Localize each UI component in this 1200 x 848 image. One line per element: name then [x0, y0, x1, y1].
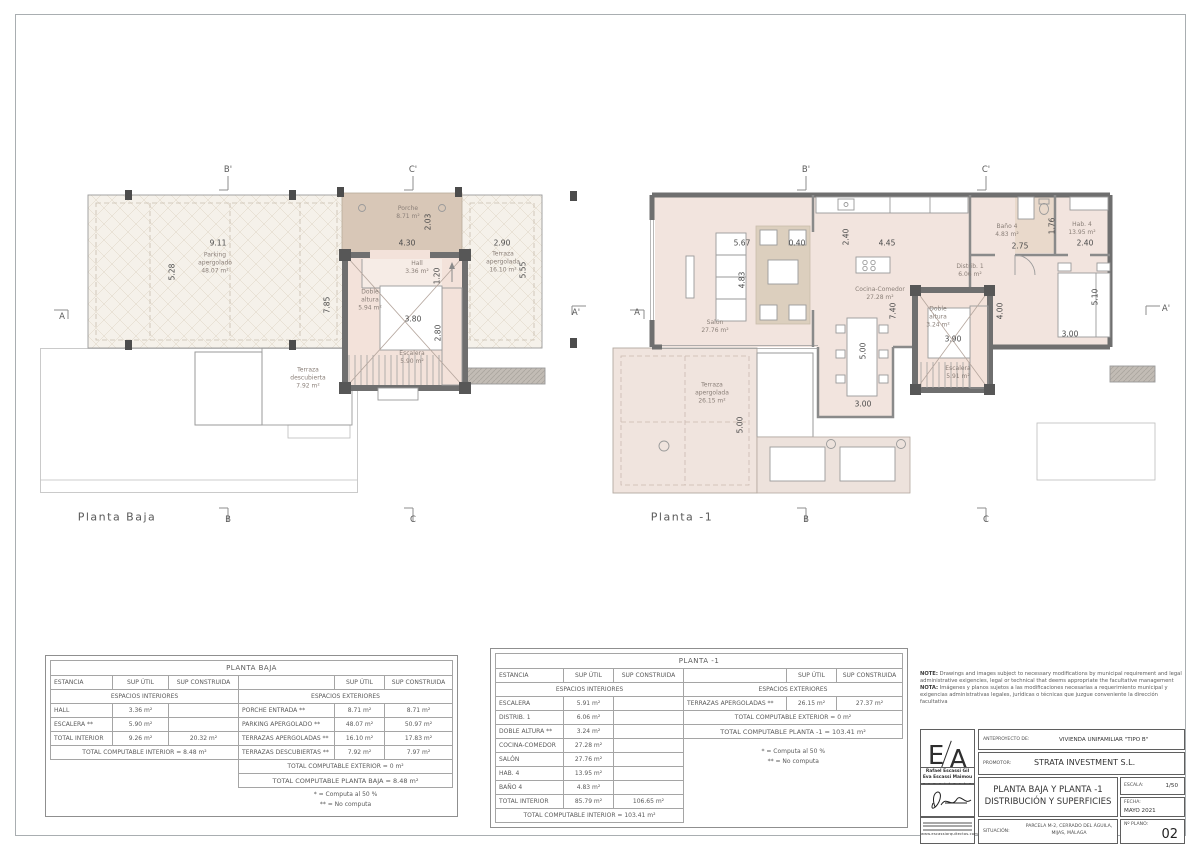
note-spanish: NOTA: Imágenes y planos sujetos a las mo… — [920, 685, 1183, 706]
legal-note: NOTE: Drawings and images subject to nec… — [920, 671, 1183, 706]
exterior-stairs — [195, 352, 262, 425]
surface-table-planta-m1: PLANTA -1 ESTANCIA SUP ÚTIL SUP CONSTRUI… — [490, 648, 908, 828]
dim-label: 7.85 — [323, 297, 332, 314]
dim-label: 2.03 — [424, 214, 433, 231]
section-marker-c-prime: C' — [409, 165, 417, 175]
dim-label: 4.00 — [996, 303, 1005, 320]
contact-line — [923, 829, 972, 831]
dim-label: 5.28 — [168, 264, 177, 281]
dim-label: 3.90 — [945, 335, 962, 344]
section-marker-b-prime-m1: B' — [802, 165, 810, 175]
room-label-escalera-m1: Escalera 5.91 m² — [938, 365, 978, 381]
dim-label: 5.00 — [736, 417, 745, 434]
table-subheader-row: ESPACIOS INTERIORES ESPACIOS EXTERIORES — [496, 683, 903, 697]
section-marker-b-prime: B' — [224, 165, 232, 175]
contact-line — [923, 822, 972, 824]
dim-label: 3.00 — [855, 400, 872, 409]
table-row: ESCALERA ** 5.90 m² PARKING APERGOLADO *… — [51, 718, 453, 732]
plano-number-box: Nº PLANO: 02 — [1120, 819, 1185, 844]
table-row: COCINA-COMEDOR 27.28 m² * = Computa al 5… — [496, 739, 903, 753]
room-label-parking: Parking apergolado 48.07 m² — [192, 251, 238, 274]
table-header-row: ESTANCIA SUP ÚTIL SUP CONSTRUIDA SUP ÚTI… — [496, 669, 903, 683]
architect-names: Rafael Escassi Gil Eva Escassi Maimou a … — [920, 767, 975, 784]
room-label-cocina: Cocina-Comedor 27.28 m² — [845, 286, 915, 302]
table-row: DOBLE ALTURA ** 3.24 m² TOTAL COMPUTABLE… — [496, 725, 903, 739]
fecha-box: FECHA: MAYO 2021 — [1120, 797, 1185, 817]
plan-title-baja: Planta Baja — [78, 511, 157, 524]
dim-label: 3.00 — [1062, 330, 1079, 339]
table-row: TOTAL COMPUTABLE INTERIOR = 8.48 m² TERR… — [51, 746, 453, 760]
surface-table-planta-baja: PLANTA BAJA ESTANCIA SUP ÚTIL SUP CONSTR… — [45, 655, 458, 817]
room-label-terraza-m1: Terraza apergolada 26.15 m² — [689, 381, 735, 404]
dim-label: 2.40 — [1077, 239, 1094, 248]
section-marker-c-prime-m1: C' — [982, 165, 990, 175]
table-subheader-row: ESPACIOS INTERIORES ESPACIOS EXTERIORES — [51, 690, 453, 704]
room-label-doble-altura-m1: Doble altura 3.24 m² — [924, 305, 952, 328]
section-marker-b-m1: B — [803, 515, 809, 525]
table-row: DISTRIB. 1 6.06 m² TOTAL COMPUTABLE EXTE… — [496, 711, 903, 725]
room-label-doble-altura: Doble altura 5.94 m² — [356, 288, 384, 311]
dim-label: 1.76 — [1048, 218, 1057, 235]
table-title-row: PLANTA -1 — [496, 654, 903, 669]
room-label-hall: Hall 3.36 m² — [399, 260, 435, 276]
dim-label: 5.55 — [519, 262, 528, 279]
room-label-bano4: Baño 4 4.83 m² — [990, 223, 1024, 239]
table-row: HALL 3.36 m² PORCHE ENTRADA ** 8.71 m² 8… — [51, 704, 453, 718]
section-marker-a: A — [59, 312, 65, 322]
section-marker-c: C — [410, 515, 416, 525]
architect-contact: www.escassiarquitectos.com — [920, 817, 975, 844]
dim-label: 3.80 — [405, 315, 422, 324]
dim-label: 1.20 — [433, 268, 442, 285]
note-english: NOTE: Drawings and images subject to nec… — [920, 671, 1183, 685]
pergola-area — [88, 195, 542, 348]
dim-label: 7.40 — [889, 303, 898, 320]
room-label-salon: Salón 27.76 m² — [695, 319, 735, 335]
section-marker-c-m1: C — [983, 515, 989, 525]
room-label-distrib: Distrib. 1 6.06 m² — [950, 263, 990, 279]
promotor-box: PROMOTOR: STRATA INVESTMENT S.L. — [978, 752, 1185, 775]
sheet-title-box: PLANTA BAJA Y PLANTA -1 DISTRIBUCIÓN Y S… — [978, 777, 1118, 817]
table-row: TOTAL INTERIOR 9.26 m² 20.32 m² TERRAZAS… — [51, 732, 453, 746]
section-marker-a-prime-m1: A' — [1162, 304, 1170, 314]
room-label-escalera: Escalera 5.90 m² — [392, 350, 432, 366]
signature — [921, 785, 976, 818]
dim-label: 5.67 — [734, 239, 751, 248]
dim-label: 4.45 — [879, 239, 896, 248]
dim-label: 4.83 — [738, 272, 747, 289]
section-marker-a-prime: A' — [572, 308, 580, 318]
dim-label: 0.40 — [789, 239, 806, 248]
planta-menos1-drawing — [600, 160, 1180, 535]
table-title-row: PLANTA BAJA — [51, 661, 453, 676]
escala-box: ESCALA: 1/50 — [1120, 777, 1185, 795]
table-header-row: ESTANCIA SUP ÚTIL SUP CONSTRUIDA SUP ÚTI… — [51, 676, 453, 690]
anteproyecto-box: ANTEPROYECTO DE: VIVIENDA UNIFAMILIAR "T… — [978, 729, 1185, 750]
planta-baja-drawing — [40, 160, 600, 535]
side-path — [465, 368, 545, 384]
table-row: ESCALERA 5.91 m² TERRAZAS APERGOLADAS **… — [496, 697, 903, 711]
room-label-terraza-descubierta: Terraza descubierta 7.92 m² — [285, 366, 331, 389]
room-label-hab4: Hab. 4 13.95 m² — [1063, 221, 1101, 237]
dim-label: 4.30 — [399, 239, 416, 248]
section-marker-a-m1: A — [634, 308, 640, 318]
dim-label: 5.10 — [1091, 289, 1100, 306]
dim-label: 2.40 — [842, 229, 851, 246]
dim-label: 9.11 — [210, 239, 227, 248]
situacion-box: SITUACIÓN: PARCELA M-2, CERRADO DEL ÁGUI… — [978, 819, 1118, 844]
table-row: TOTAL COMPUTABLE EXTERIOR = 0 m² — [51, 760, 453, 774]
drawing-sheet: Parking apergolado 48.07 m² Porche 8.71 … — [0, 0, 1200, 848]
dim-label: 2.90 — [494, 239, 511, 248]
section-marker-b: B — [225, 515, 231, 525]
dim-label: 2.80 — [434, 325, 443, 342]
architect-website: www.escassiarquitectos.com — [921, 832, 974, 836]
contact-line — [923, 825, 972, 827]
plan-title-m1: Planta -1 — [651, 511, 713, 524]
room-label-porche: Porche 8.71 m² — [388, 205, 428, 221]
dim-label: 2.75 — [1012, 242, 1029, 251]
signature-area — [920, 784, 975, 817]
dim-label: 5.00 — [859, 343, 868, 360]
architect-logo: EA — [920, 729, 975, 769]
